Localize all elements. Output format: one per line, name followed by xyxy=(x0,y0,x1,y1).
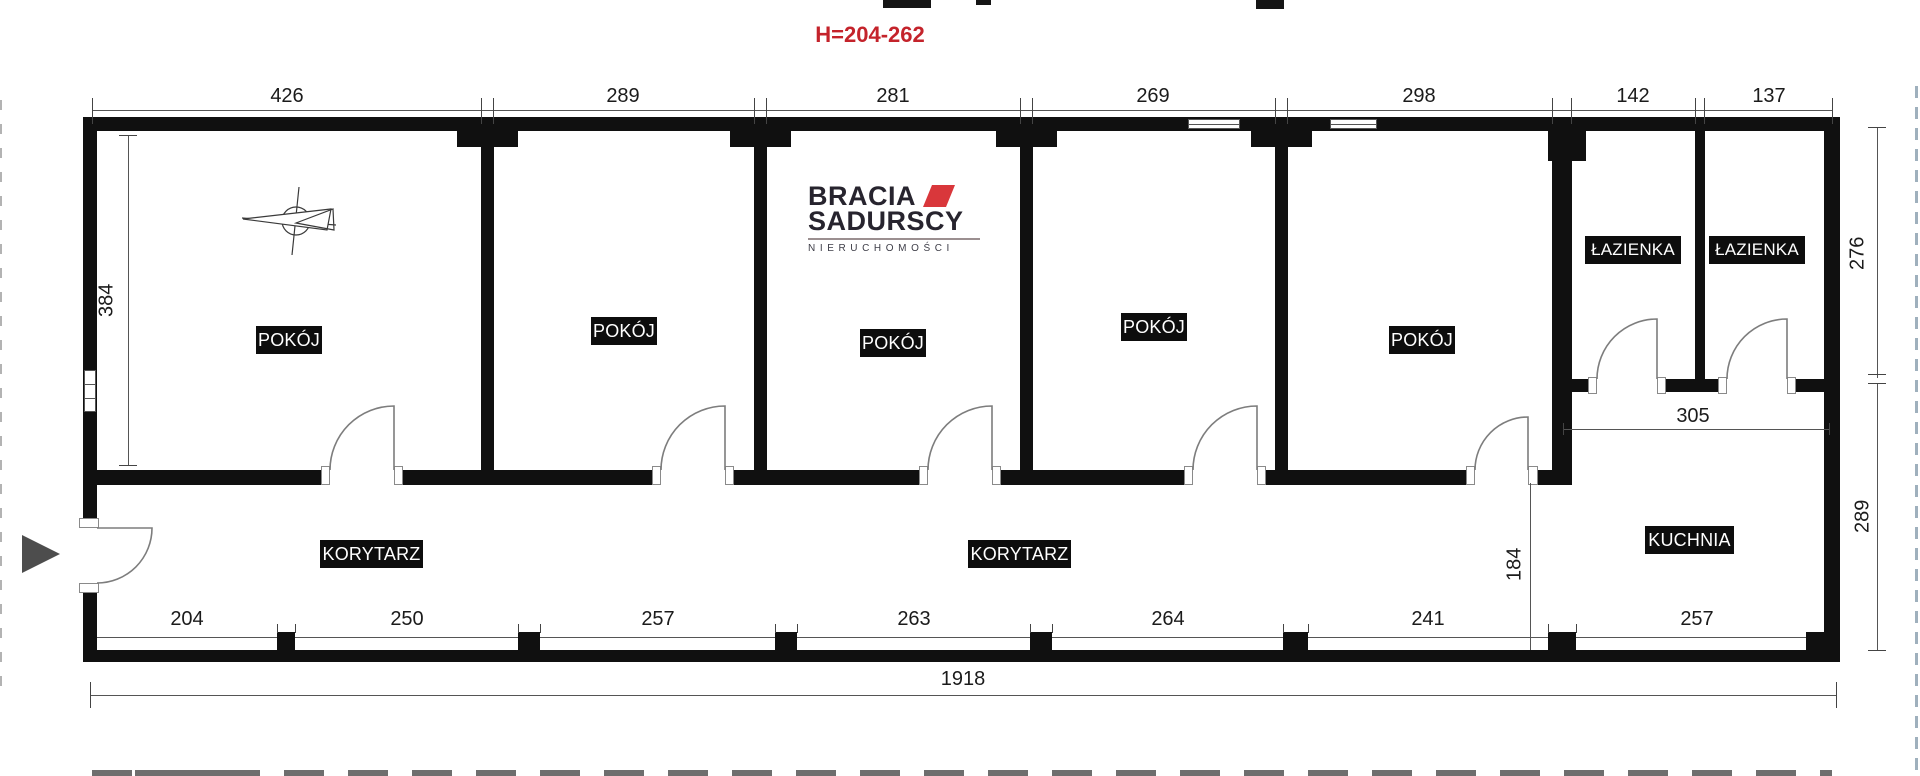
room-label-pokoj-1: POKÓJ xyxy=(256,326,322,354)
door-swing-room-2 xyxy=(661,406,725,470)
room-label-korytarz-1: KORYTARZ xyxy=(320,540,423,568)
dim-top-5: 298 xyxy=(1389,84,1449,108)
dim-tick xyxy=(766,98,767,124)
logo-flag-icon xyxy=(922,184,958,208)
room-label-kuchnia: KUCHNIA xyxy=(1645,526,1734,554)
dim-tick xyxy=(1868,383,1886,384)
logo-divider xyxy=(808,238,980,240)
dim-top-2: 289 xyxy=(593,84,653,108)
dimension-line-right-upper xyxy=(1877,127,1878,378)
dim-tick xyxy=(775,624,776,633)
dim-right-upper: 276 xyxy=(1845,220,1871,286)
agency-logo: BRACIA SADURSCY NIERUCHOMOŚCI xyxy=(808,184,992,254)
facade-pier xyxy=(1283,632,1308,658)
dim-bottom-4: 263 xyxy=(884,607,944,631)
dim-tick xyxy=(1563,423,1564,435)
door-swing-bathroom-2 xyxy=(1727,319,1787,379)
dim-right-lower: 289 xyxy=(1850,484,1876,548)
dim-top-6: 142 xyxy=(1603,84,1663,108)
dim-tick xyxy=(1576,624,1577,633)
dim-left-room-height: 384 xyxy=(94,268,120,332)
facade-pier xyxy=(1030,632,1052,658)
logo-brand-bottom: SADURSCY xyxy=(808,209,992,234)
dim-tick xyxy=(1020,98,1021,124)
dim-tick xyxy=(277,624,278,633)
dim-bottom-5: 264 xyxy=(1138,607,1198,631)
dim-tick xyxy=(540,624,541,633)
dim-tick xyxy=(1552,98,1553,124)
dim-tick xyxy=(493,98,494,124)
dim-tick xyxy=(1052,624,1053,633)
dim-bottom-3: 257 xyxy=(628,607,688,631)
dimension-line-left xyxy=(128,135,129,466)
dim-tick xyxy=(1032,98,1033,124)
dim-top-3: 281 xyxy=(863,84,923,108)
logo-subtitle: NIERUCHOMOŚCI xyxy=(808,243,992,254)
dim-tick xyxy=(119,465,137,466)
dim-tick xyxy=(797,624,798,633)
dim-bottom-2: 250 xyxy=(377,607,437,631)
room-label-pokoj-4: POKÓJ xyxy=(1121,313,1187,341)
dim-tick xyxy=(1868,127,1886,128)
dim-top-4: 269 xyxy=(1123,84,1183,108)
dim-bottom-6: 241 xyxy=(1398,607,1458,631)
dimension-line-right-lower xyxy=(1877,383,1878,650)
door-swing-room-3 xyxy=(928,406,992,470)
dim-tick xyxy=(1548,624,1549,633)
dim-tick xyxy=(518,624,519,633)
plan-symbols xyxy=(0,0,1920,776)
facade-pier xyxy=(1806,632,1828,658)
room-label-pokoj-3: POKÓJ xyxy=(860,329,926,357)
dim-tick xyxy=(90,682,91,708)
dim-tick xyxy=(1030,624,1031,633)
dim-tick xyxy=(481,98,482,124)
dim-tick xyxy=(1704,98,1705,124)
facade-pier xyxy=(518,632,540,658)
dim-tick xyxy=(1868,374,1886,375)
dim-tick xyxy=(1283,624,1284,633)
door-swing-room-1 xyxy=(330,406,394,470)
dimension-line-total xyxy=(90,695,1837,696)
dim-tick xyxy=(1571,98,1572,124)
room-label-lazienka-1: ŁAZIENKA xyxy=(1585,236,1681,264)
dimension-line-corridor-opening xyxy=(1530,483,1531,650)
dim-bottom-7: 257 xyxy=(1667,607,1727,631)
facade-pier xyxy=(775,632,797,658)
room-label-korytarz-2: KORYTARZ xyxy=(968,540,1071,568)
floor-plan: H=204-262 xyxy=(0,0,1920,776)
facade-pier xyxy=(1548,632,1576,658)
dim-tick xyxy=(1275,98,1276,124)
dim-tick xyxy=(1695,98,1696,124)
dim-tick xyxy=(1287,98,1288,124)
dim-top-7: 137 xyxy=(1739,84,1799,108)
dimension-line-kitchen xyxy=(1563,429,1830,430)
door-swing-room-4 xyxy=(1193,406,1257,470)
dim-kitchen-width: 305 xyxy=(1663,405,1723,427)
dim-tick xyxy=(295,624,296,633)
dim-total-width: 1918 xyxy=(918,666,1008,692)
dim-corridor-opening: 184 xyxy=(1502,532,1528,596)
dim-tick xyxy=(119,135,137,136)
dim-tick xyxy=(754,98,755,124)
door-swing-entrance xyxy=(97,528,152,583)
dim-tick xyxy=(1836,682,1837,708)
room-label-lazienka-2: ŁAZIENKA xyxy=(1709,236,1805,264)
door-swing-room-5 xyxy=(1475,417,1528,470)
room-label-pokoj-5: POKÓJ xyxy=(1389,326,1455,354)
facade-pier xyxy=(277,632,295,658)
dim-tick xyxy=(1868,650,1886,651)
door-swing-bathroom-1 xyxy=(1597,319,1657,379)
dim-tick xyxy=(1308,624,1309,633)
dim-tick xyxy=(92,98,93,124)
dim-top-1: 426 xyxy=(257,84,317,108)
dim-tick xyxy=(1832,98,1833,124)
room-label-pokoj-2: POKÓJ xyxy=(591,317,657,345)
dim-tick xyxy=(1829,423,1830,435)
dim-bottom-1: 204 xyxy=(157,607,217,631)
